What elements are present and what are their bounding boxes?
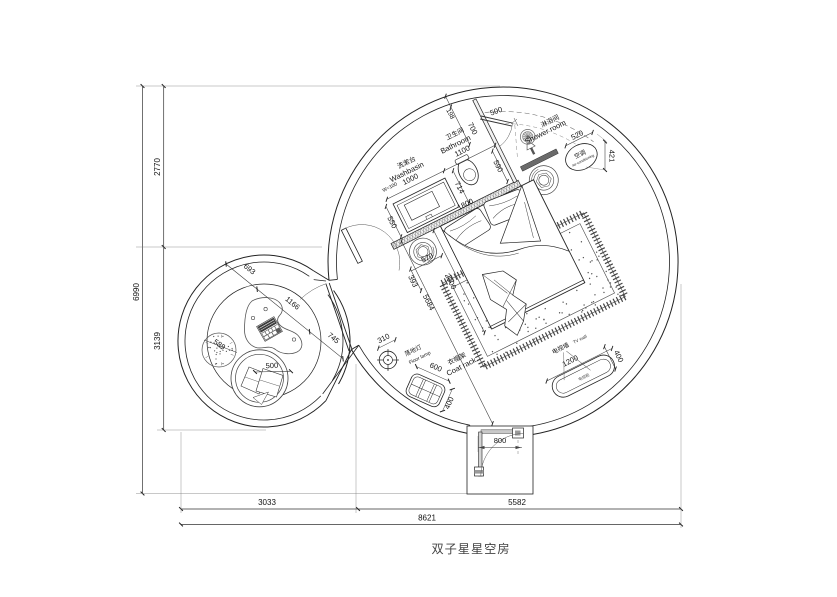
svg-text:5582: 5582 — [508, 498, 526, 507]
svg-text:8621: 8621 — [418, 514, 436, 523]
svg-text:6990: 6990 — [132, 283, 141, 301]
svg-text:421: 421 — [608, 150, 617, 163]
svg-text:800: 800 — [494, 436, 507, 445]
svg-text:3139: 3139 — [153, 332, 162, 350]
svg-text:500: 500 — [266, 361, 279, 370]
svg-text:双子星星空房: 双子星星空房 — [431, 541, 510, 556]
svg-text:2770: 2770 — [153, 158, 162, 176]
svg-text:3033: 3033 — [258, 498, 276, 507]
